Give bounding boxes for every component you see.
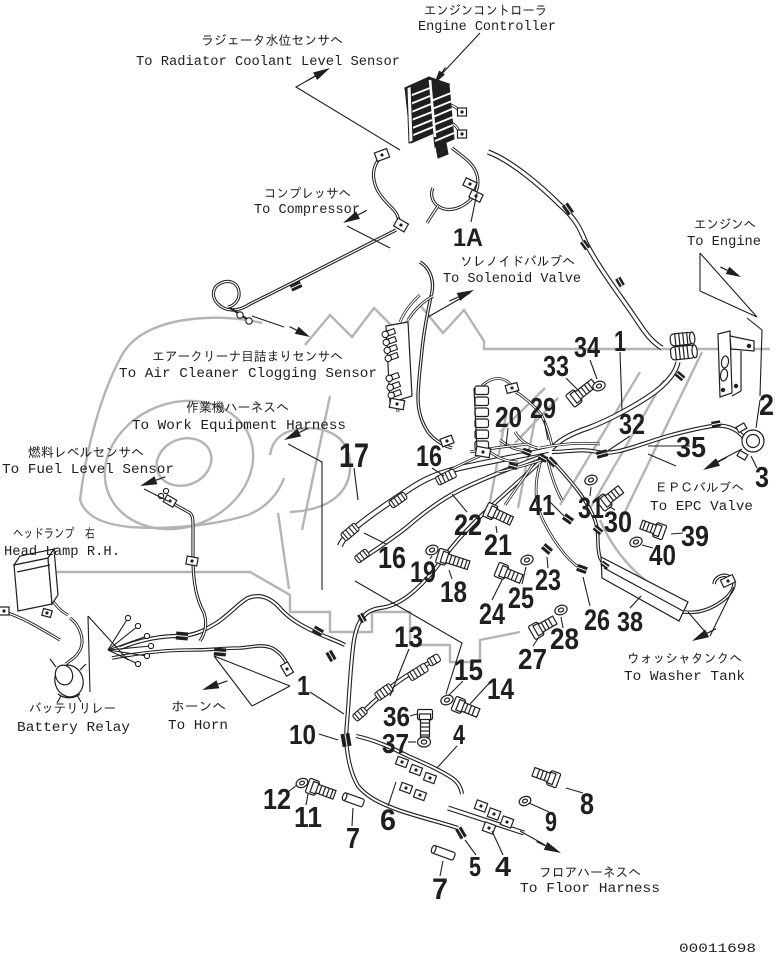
svg-text:39: 39: [681, 521, 709, 553]
svg-text:24: 24: [479, 598, 505, 631]
svg-text:To EPC Valve: To EPC Valve: [650, 500, 753, 515]
svg-text:18: 18: [440, 576, 467, 609]
svg-text:9: 9: [545, 806, 557, 837]
svg-text:21: 21: [484, 529, 512, 562]
svg-text:Battery Relay: Battery Relay: [17, 721, 130, 736]
svg-text:32: 32: [619, 409, 645, 441]
svg-text:4: 4: [495, 851, 511, 882]
svg-text:To Radiator Coolant Level Sens: To Radiator Coolant Level Sensor: [136, 55, 400, 70]
svg-text:Head Lamp R.H.: Head Lamp R.H.: [4, 545, 120, 560]
svg-text:22: 22: [454, 509, 482, 542]
svg-text:5: 5: [469, 851, 481, 882]
svg-text:To Compressor: To Compressor: [254, 203, 360, 218]
svg-text:12: 12: [263, 784, 291, 816]
svg-text:15: 15: [454, 654, 483, 687]
svg-text:4: 4: [453, 719, 465, 750]
svg-text:To Horn: To Horn: [168, 719, 228, 734]
svg-text:31: 31: [578, 492, 604, 525]
svg-text:7: 7: [346, 823, 360, 855]
svg-text:6: 6: [380, 804, 396, 837]
svg-text:To Engine: To Engine: [687, 235, 761, 250]
svg-text:14: 14: [487, 673, 514, 706]
svg-text:29: 29: [530, 393, 556, 425]
svg-text:3: 3: [755, 462, 769, 494]
svg-text:8: 8: [580, 788, 594, 821]
svg-text:35: 35: [676, 432, 706, 464]
svg-text:26: 26: [584, 604, 610, 637]
svg-text:To Fuel Level Sensor: To Fuel Level Sensor: [2, 463, 174, 478]
svg-text:27: 27: [518, 644, 547, 676]
svg-text:1: 1: [297, 670, 310, 701]
svg-text:Engine Controller: Engine Controller: [418, 20, 556, 35]
svg-text:40: 40: [649, 540, 676, 572]
svg-text:To Air Cleaner Clogging Sensor: To Air Cleaner Clogging Sensor: [119, 367, 377, 382]
svg-text:1: 1: [614, 326, 626, 358]
svg-text:16: 16: [416, 440, 442, 473]
svg-text:To Washer Tank: To Washer Tank: [624, 670, 745, 685]
svg-text:17: 17: [339, 437, 369, 475]
svg-text:13: 13: [394, 621, 423, 654]
svg-text:7: 7: [432, 873, 448, 906]
svg-text:To Solenoid Valve: To Solenoid Valve: [443, 272, 581, 287]
svg-text:37: 37: [382, 728, 409, 759]
svg-text:23: 23: [535, 564, 561, 597]
svg-text:33: 33: [543, 351, 569, 383]
svg-text:2: 2: [759, 389, 774, 422]
svg-text:10: 10: [289, 719, 316, 750]
svg-text:To Work Equipment Harness: To Work Equipment Harness: [132, 419, 346, 434]
svg-text:20: 20: [495, 402, 522, 434]
svg-text:19: 19: [410, 556, 436, 589]
svg-text:38: 38: [617, 606, 643, 637]
svg-text:30: 30: [604, 506, 632, 539]
svg-text:16: 16: [378, 540, 406, 575]
svg-text:28: 28: [550, 623, 579, 656]
svg-text:1A: 1A: [453, 224, 483, 252]
svg-text:25: 25: [508, 582, 534, 615]
svg-text:To Floor Harness: To Floor Harness: [520, 882, 660, 897]
svg-text:00011698: 00011698: [679, 941, 756, 954]
svg-text:41: 41: [529, 490, 555, 522]
svg-text:34: 34: [574, 332, 600, 364]
svg-text:11: 11: [294, 802, 322, 834]
